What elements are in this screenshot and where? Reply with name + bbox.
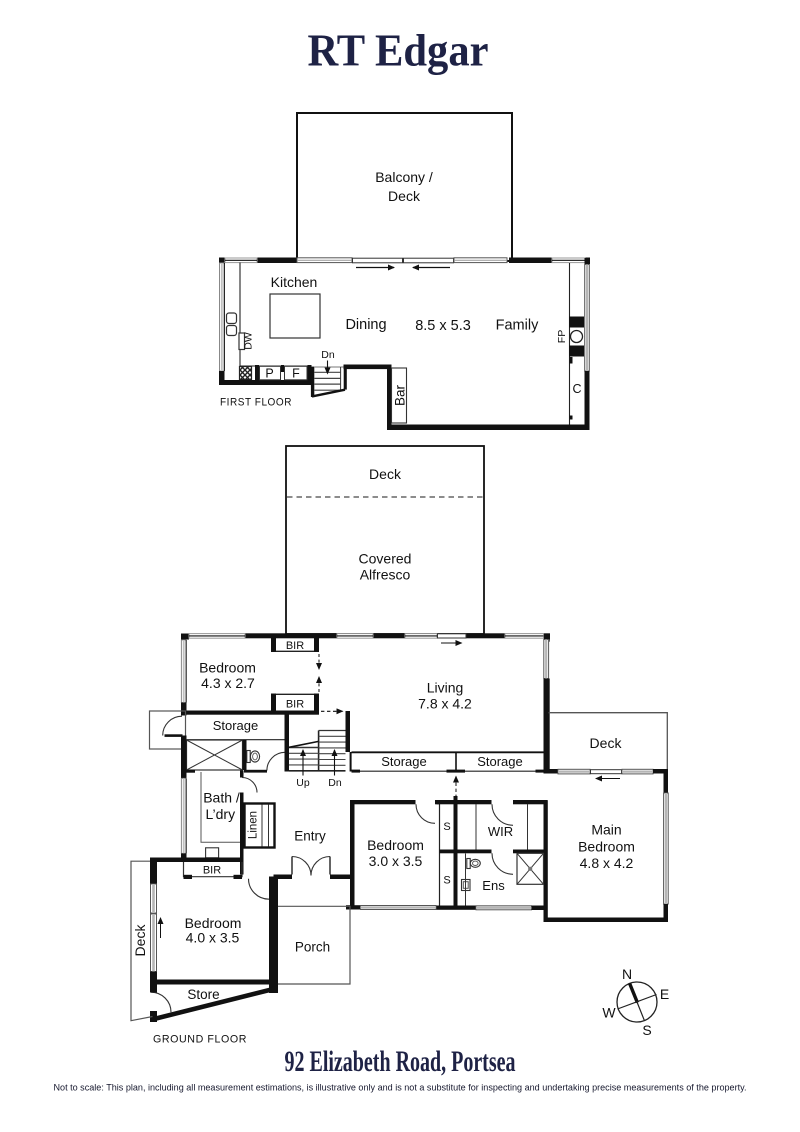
svg-text:BIR: BIR: [286, 640, 304, 652]
svg-text:Alfresco: Alfresco: [360, 567, 411, 583]
svg-text:Living: Living: [427, 680, 464, 696]
svg-text:S: S: [443, 821, 450, 833]
svg-text:Storage: Storage: [477, 754, 523, 769]
svg-text:Porch: Porch: [295, 940, 330, 955]
svg-text:BIR: BIR: [203, 865, 221, 877]
svg-text:Storage: Storage: [381, 754, 427, 769]
svg-text:Family: Family: [496, 318, 539, 334]
svg-text:Bar: Bar: [392, 384, 407, 406]
svg-text:RT Edgar: RT Edgar: [308, 26, 489, 76]
svg-text:F: F: [292, 367, 300, 381]
svg-text:Bedroom: Bedroom: [578, 839, 635, 855]
svg-text:4.3 x 2.7: 4.3 x 2.7: [201, 675, 255, 691]
svg-text:Deck: Deck: [388, 188, 421, 204]
svg-text:Kitchen: Kitchen: [271, 274, 318, 290]
svg-text:Store: Store: [187, 987, 219, 1002]
svg-text:Dn: Dn: [328, 777, 342, 789]
svg-text:3.0 x 3.5: 3.0 x 3.5: [369, 853, 423, 869]
svg-text:Main: Main: [591, 822, 621, 838]
svg-text:Balcony /: Balcony /: [375, 169, 433, 185]
svg-text:Dining: Dining: [345, 317, 386, 333]
svg-text:Ens: Ens: [482, 878, 505, 893]
svg-text:Covered: Covered: [359, 551, 412, 567]
svg-text:Deck: Deck: [590, 735, 623, 751]
svg-text:Storage: Storage: [213, 718, 259, 733]
svg-text:7.8 x 4.2: 7.8 x 4.2: [418, 696, 472, 712]
svg-text:8.5 x 5.3: 8.5 x 5.3: [415, 318, 471, 334]
svg-text:Deck: Deck: [132, 924, 148, 957]
svg-text:Entry: Entry: [294, 829, 326, 844]
svg-text:S: S: [443, 875, 450, 887]
svg-text:Linen: Linen: [248, 811, 260, 839]
svg-text:DW: DW: [243, 332, 255, 350]
svg-text:P: P: [265, 367, 273, 381]
svg-text:Dn: Dn: [321, 349, 335, 361]
svg-text:Bedroom: Bedroom: [199, 660, 256, 676]
svg-text:BIR: BIR: [286, 699, 304, 711]
svg-text:Bedroom: Bedroom: [367, 837, 424, 853]
svg-text:S: S: [642, 1022, 651, 1038]
svg-text:N: N: [622, 966, 632, 982]
svg-text:4.8 x 4.2: 4.8 x 4.2: [580, 855, 634, 871]
svg-text:Deck: Deck: [369, 466, 402, 482]
svg-text:Up: Up: [296, 777, 310, 789]
svg-text:Not to scale: This plan, inclu: Not to scale: This plan, including all m…: [54, 1083, 747, 1093]
svg-text:92 Elizabeth Road, Portsea: 92 Elizabeth Road, Portsea: [285, 1046, 516, 1078]
svg-text:FIRST FLOOR: FIRST FLOOR: [220, 397, 292, 409]
svg-text:L’dry: L’dry: [206, 806, 236, 822]
svg-text:W: W: [602, 1005, 616, 1021]
svg-text:FP: FP: [556, 330, 568, 343]
svg-text:Bath /: Bath /: [203, 789, 240, 805]
svg-text:C: C: [572, 382, 581, 396]
svg-text:GROUND FLOOR: GROUND FLOOR: [153, 1034, 247, 1046]
svg-text:4.0 x 3.5: 4.0 x 3.5: [186, 930, 240, 946]
svg-text:E: E: [660, 986, 669, 1002]
svg-text:WIR: WIR: [488, 824, 513, 839]
